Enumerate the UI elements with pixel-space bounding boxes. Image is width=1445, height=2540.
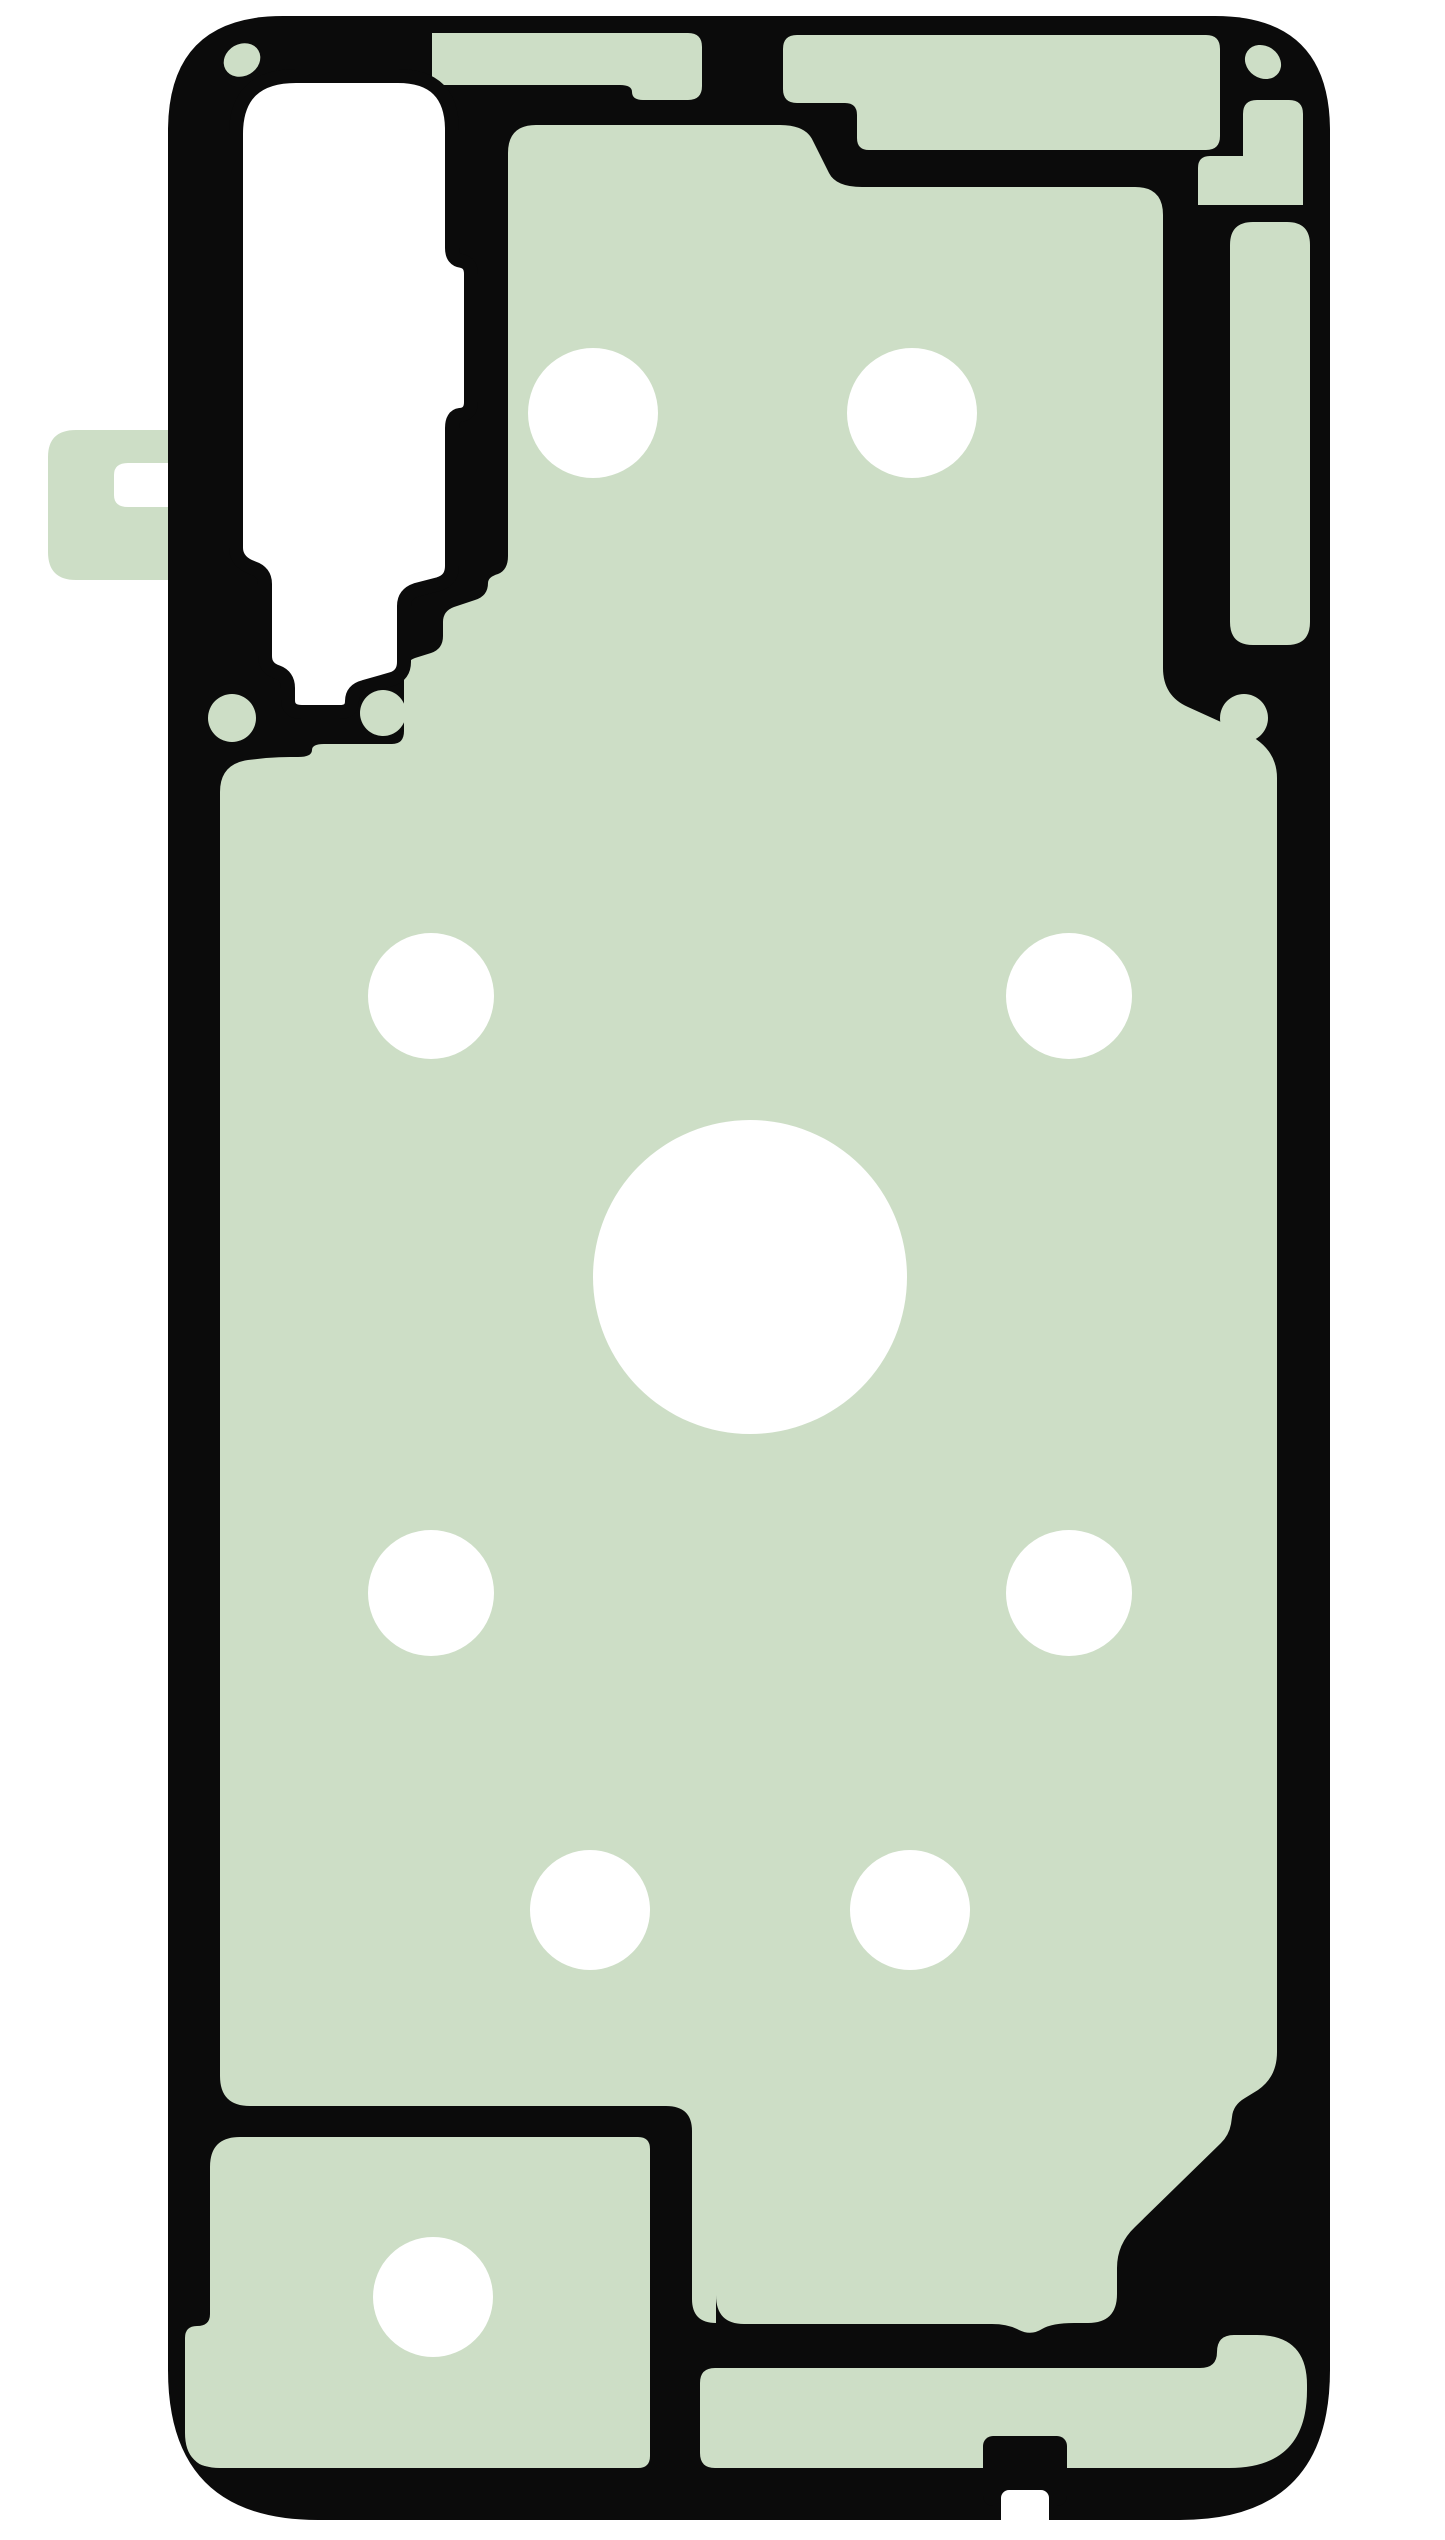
hole-mid-lower-left [368, 1530, 494, 1656]
bottom-edge-slot [1001, 2490, 1049, 2540]
hole-mid-lower-right [1006, 1530, 1132, 1656]
hole-top-left [528, 348, 658, 478]
product-image-canvas [0, 0, 1445, 2540]
hole-lower-left [530, 1850, 650, 1970]
camera-dot-right [360, 690, 406, 736]
hole-center-large [593, 1120, 907, 1434]
hole-top-right [847, 348, 977, 478]
right-strip [1230, 222, 1310, 645]
adhesive-gasket-illustration [0, 0, 1445, 2540]
hole-lower-right [850, 1850, 970, 1970]
hole-mid-upper-right [1006, 933, 1132, 1059]
pull-tab [48, 430, 168, 580]
hole-mid-upper-left [368, 933, 494, 1059]
right-side-dot [1220, 694, 1268, 742]
camera-dot-left [208, 694, 256, 742]
hole-bottom-left [373, 2237, 493, 2357]
